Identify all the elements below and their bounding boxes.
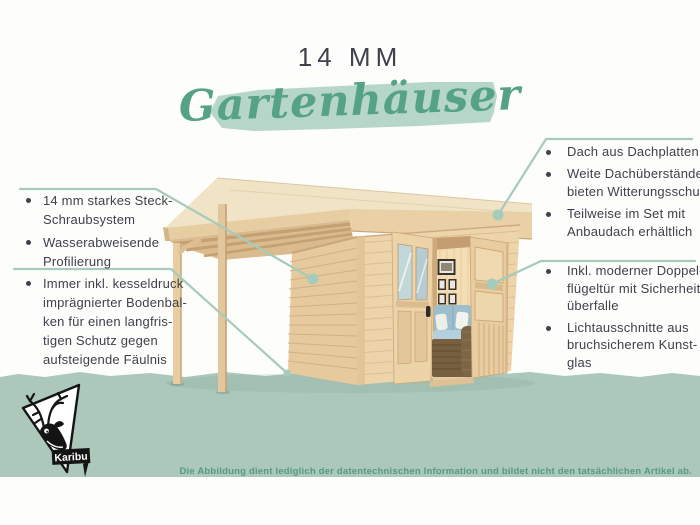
bullet-line: Dach aus Dachplatten xyxy=(567,143,700,161)
bullet-item: 14 mm starkes Steck- Schraubsystem xyxy=(25,191,195,229)
bullet-line: Inkl. moderner Doppel- xyxy=(567,262,700,280)
bullet-line: Profilierung xyxy=(43,252,195,271)
bullet-line: bieten Witterungsschutz xyxy=(567,183,700,201)
door-handle xyxy=(426,306,431,317)
house-illustration xyxy=(163,178,532,394)
bullet-item: Inkl. moderner Doppel- flügeltür mit Sic… xyxy=(545,262,700,315)
bullet-dot xyxy=(546,212,551,217)
callout-dot-wall xyxy=(308,274,319,285)
bullet-line: bruchsicherem Kunst- xyxy=(567,336,700,354)
bullet-dot xyxy=(26,240,31,245)
bullet-line: aufsteigende Fäulnis xyxy=(43,350,195,369)
callout-dot-door xyxy=(487,279,498,290)
right-feature-list-2: Inkl. moderner Doppel- flügeltür mit Sic… xyxy=(545,262,700,375)
bullet-dot xyxy=(26,198,31,203)
bullet-line: überfalle xyxy=(567,297,700,315)
bullet-line: flügeltür mit Sicherheits- xyxy=(567,280,700,298)
bullet-item: Immer inkl. kesseldruck imprägnierter Bo… xyxy=(25,274,195,369)
bullet-dot xyxy=(546,172,551,177)
side-wall xyxy=(288,237,357,385)
bullet-line: Weite Dachüberstände xyxy=(567,165,700,183)
doorway-interior xyxy=(432,236,476,381)
bullet-item: Lichtausschnitte aus bruchsicherem Kunst… xyxy=(545,319,700,372)
left-door xyxy=(392,232,433,384)
karibu-logo-label: Karibu xyxy=(54,451,88,465)
disclaimer-text: Die Abbildung dient lediglich der datent… xyxy=(179,466,692,477)
bullet-line: tigen Schutz gegen xyxy=(43,331,195,350)
sofa xyxy=(432,305,476,377)
bullet-line: Schraubsystem xyxy=(43,210,195,229)
bullet-item: Teilweise im Set mit Anbaudach erhältlic… xyxy=(545,205,700,241)
infographic-page: Karibu 14 MM Gartenhäuser 14 mm starkes … xyxy=(0,0,700,525)
bullet-line: Teilweise im Set mit xyxy=(567,205,700,223)
right-feature-list: Dach aus Dachplatten Weite Dachüberständ… xyxy=(545,143,700,245)
bullet-dot xyxy=(26,281,31,286)
bullet-line: glas xyxy=(567,354,700,372)
bullet-item: Dach aus Dachplatten xyxy=(545,143,700,161)
left-feature-list: 14 mm starkes Steck- Schraubsystem Wasse… xyxy=(25,191,195,275)
bullet-line: imprägnierter Bodenbal- xyxy=(43,293,195,312)
right-door xyxy=(470,237,508,378)
bullet-line: Wasserabweisende xyxy=(43,233,195,252)
bullet-line: 14 mm starkes Steck- xyxy=(43,191,195,210)
callout-dot-base xyxy=(284,370,291,377)
bullet-line: ken für einen langfris- xyxy=(43,312,195,331)
bullet-dot xyxy=(546,150,551,155)
bullet-line: Immer inkl. kesseldruck xyxy=(43,274,195,293)
bullet-item: Weite Dachüberstände bieten Witterungssc… xyxy=(545,165,700,201)
bullet-line: Anbaudach erhältlich xyxy=(567,223,700,241)
bullet-item: Wasserabweisende Profilierung xyxy=(25,233,195,271)
left-feature-list-2: Immer inkl. kesseldruck imprägnierter Bo… xyxy=(25,274,195,373)
bullet-dot xyxy=(546,269,551,274)
bullet-dot xyxy=(546,326,551,331)
callout-dot-roof xyxy=(493,210,504,221)
bullet-line: Lichtausschnitte aus xyxy=(567,319,700,337)
